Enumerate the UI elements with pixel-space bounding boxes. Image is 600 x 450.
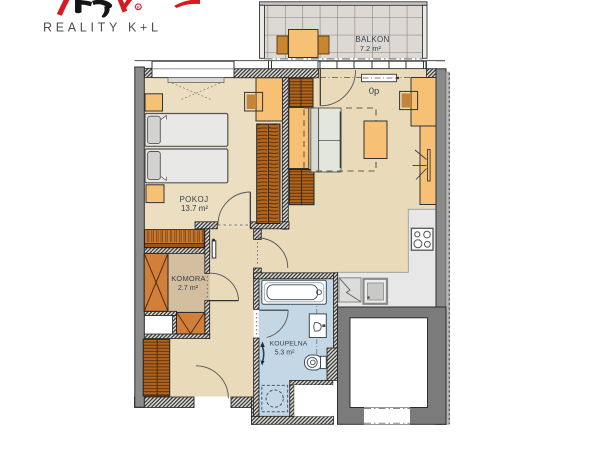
svg-text:BALKON: BALKON bbox=[355, 35, 389, 44]
svg-text:KOMORA: KOMORA bbox=[171, 274, 206, 283]
svg-text:REALITY K+L: REALITY K+L bbox=[43, 21, 162, 35]
svg-text:0p: 0p bbox=[369, 86, 380, 97]
svg-text:KOUPELNA: KOUPELNA bbox=[270, 341, 308, 348]
svg-text:5.3 m²: 5.3 m² bbox=[275, 350, 296, 357]
svg-text:7.2 m²: 7.2 m² bbox=[360, 44, 382, 53]
svg-text:13.7 m²: 13.7 m² bbox=[181, 204, 208, 213]
svg-text:2.7 m²: 2.7 m² bbox=[178, 283, 199, 292]
svg-text:POKOJ: POKOJ bbox=[179, 195, 208, 204]
